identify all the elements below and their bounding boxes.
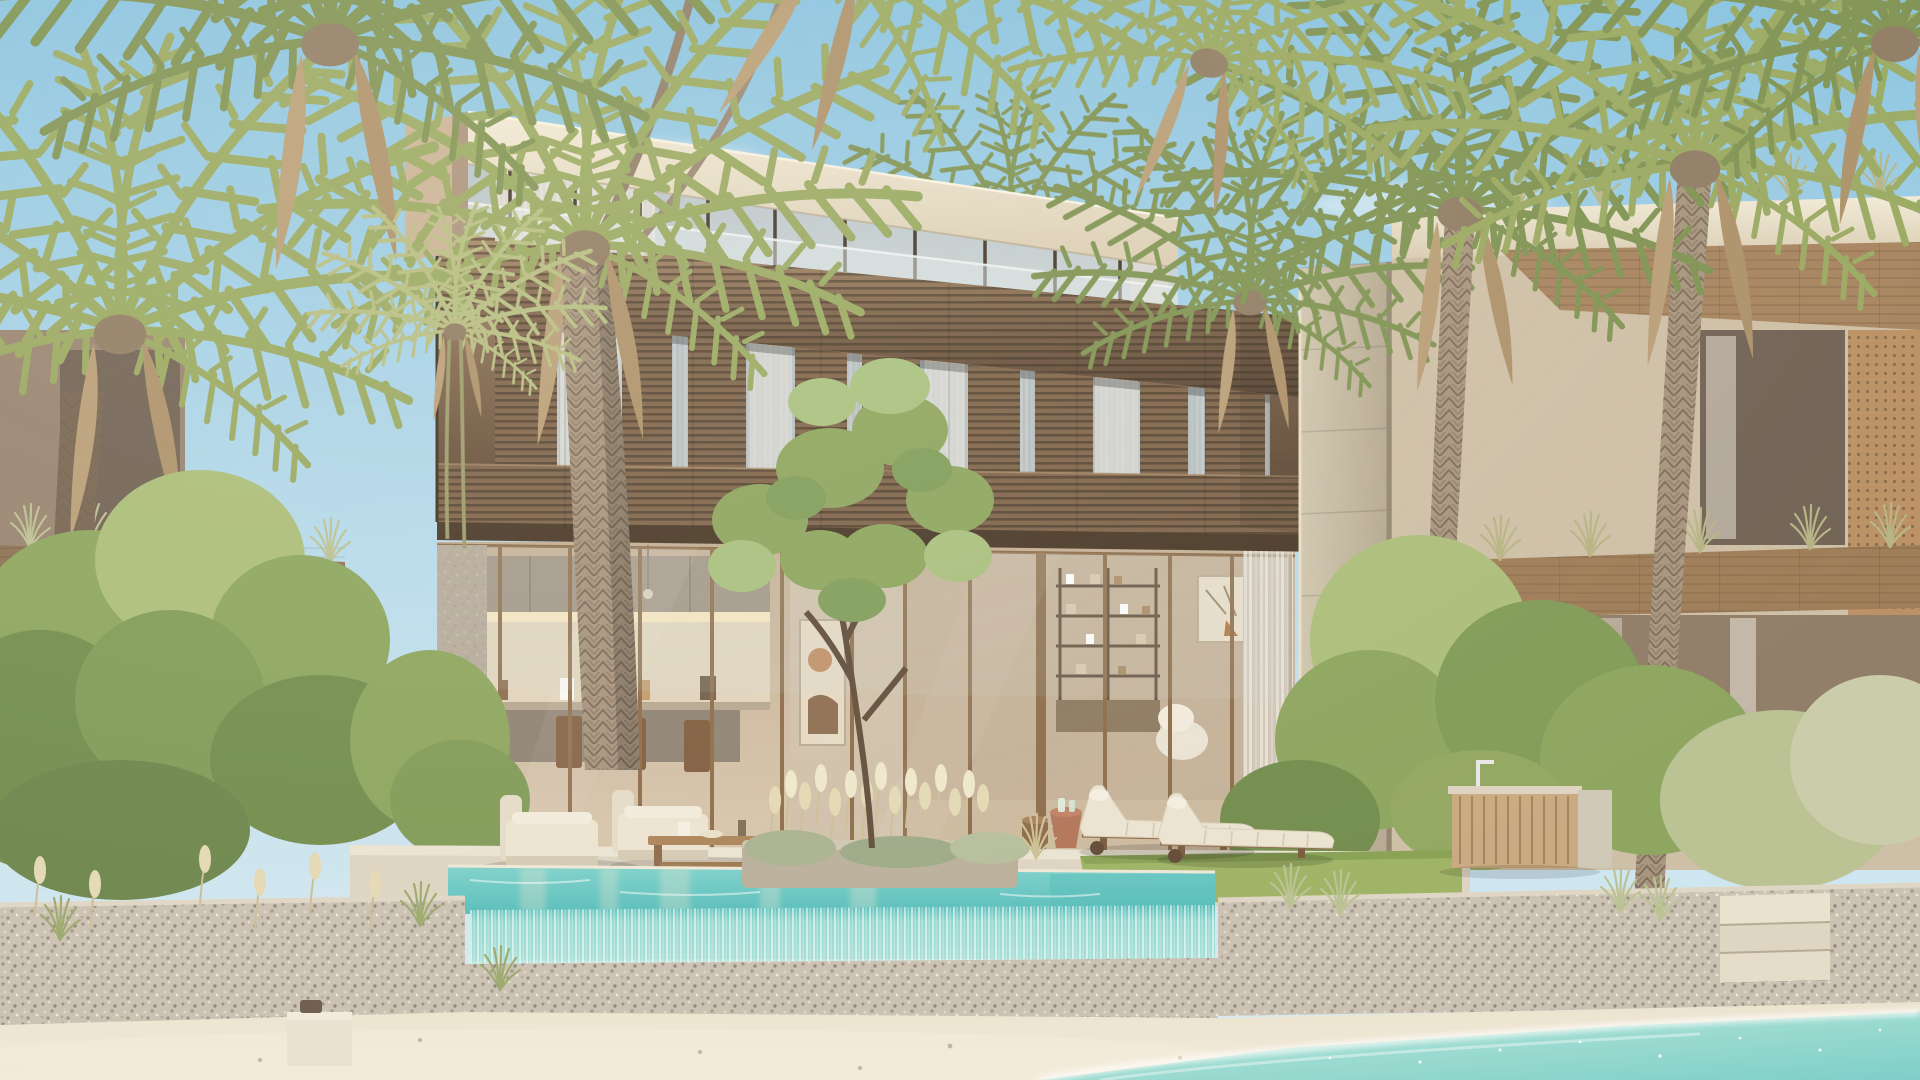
scene-canvas bbox=[0, 0, 1920, 1080]
warm-tint bbox=[0, 0, 1920, 1080]
villa-render bbox=[0, 0, 1920, 1080]
